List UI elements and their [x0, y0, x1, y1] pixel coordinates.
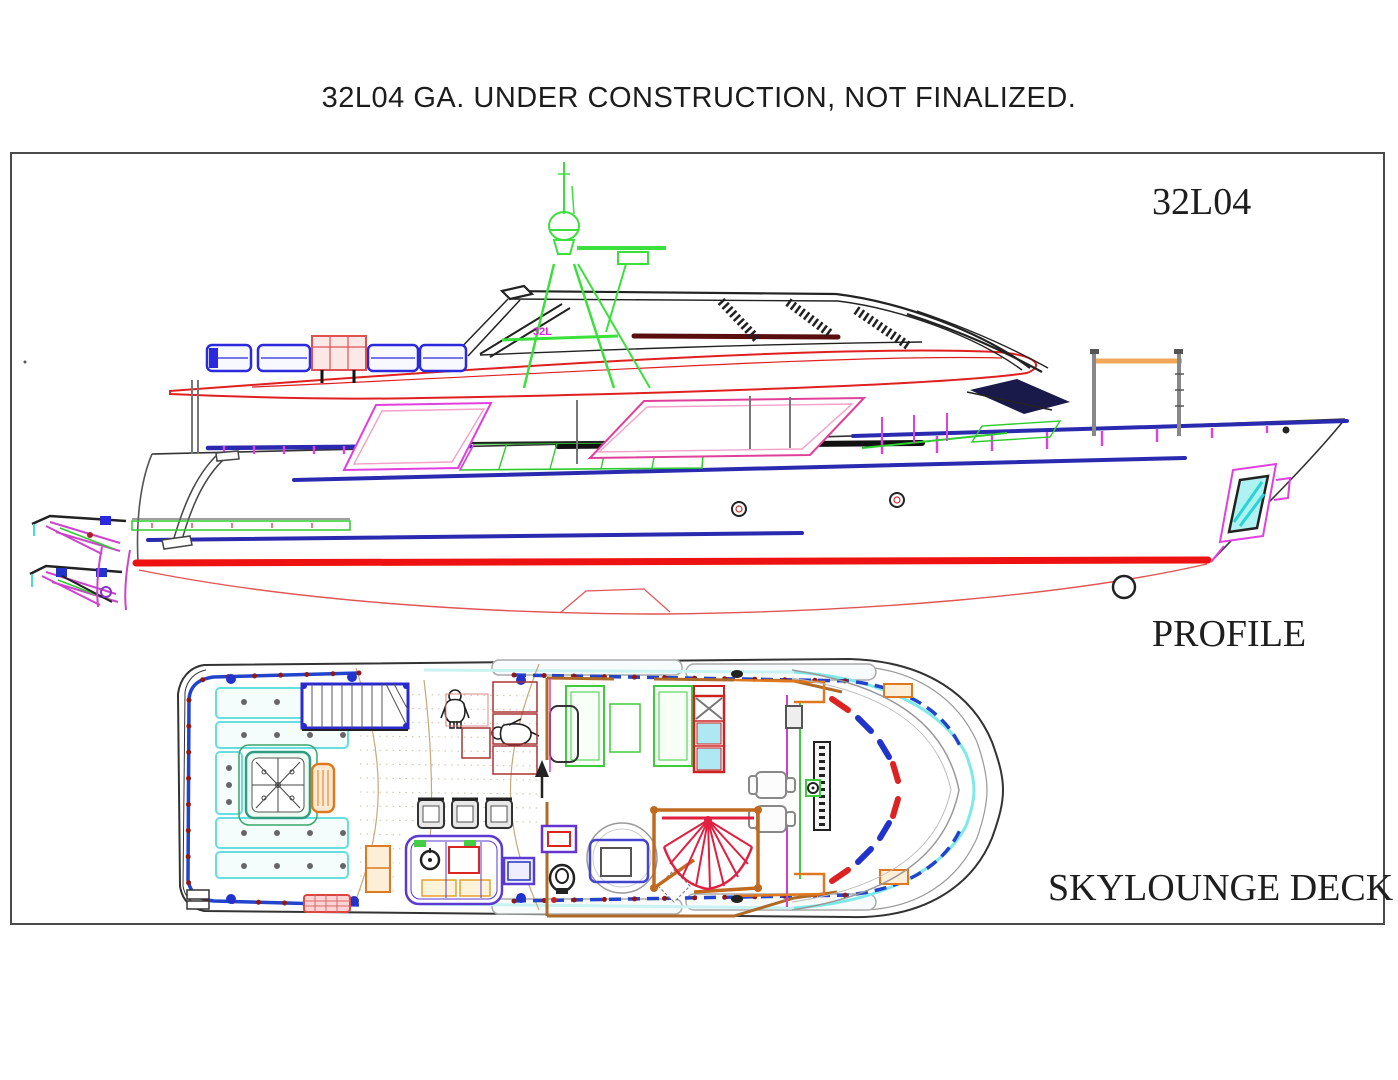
drawing-frame: 32L [10, 152, 1385, 925]
porthole [732, 502, 746, 516]
profile-radar-mast [502, 162, 666, 388]
porthole [890, 493, 904, 507]
profile-stern-davits [30, 516, 130, 610]
skylounge-deck-view [172, 652, 1017, 924]
model-label: 32L04 [1152, 180, 1251, 224]
profile-stern-stair [162, 451, 239, 549]
plot-artifact-dot [24, 361, 27, 364]
drawing-sheet: 32L04 GA. UNDER CONSTRUCTION, NOT FINALI… [0, 0, 1398, 1080]
profile-view-label: PROFILE [1152, 612, 1306, 656]
profile-swim-platform [132, 519, 350, 530]
hull-logo-text: 32L [533, 326, 552, 338]
page-title: 32L04 GA. UNDER CONSTRUCTION, NOT FINALI… [0, 82, 1398, 115]
bow-thruster [1113, 576, 1135, 598]
profile-hull-details [732, 427, 1290, 599]
skylounge-deck-label: SKYLOUNGE DECK [1048, 866, 1393, 910]
profile-grill [312, 336, 366, 370]
profile-foredeck-gate [1090, 349, 1184, 436]
profile-boot-stripe [136, 560, 1208, 563]
plan-stairs [301, 683, 409, 730]
plan-cabinet-column [694, 686, 724, 772]
plan-cabinet-orange [366, 846, 390, 892]
plan-round-table [587, 823, 657, 893]
profile-view: 32L [12, 154, 1383, 654]
